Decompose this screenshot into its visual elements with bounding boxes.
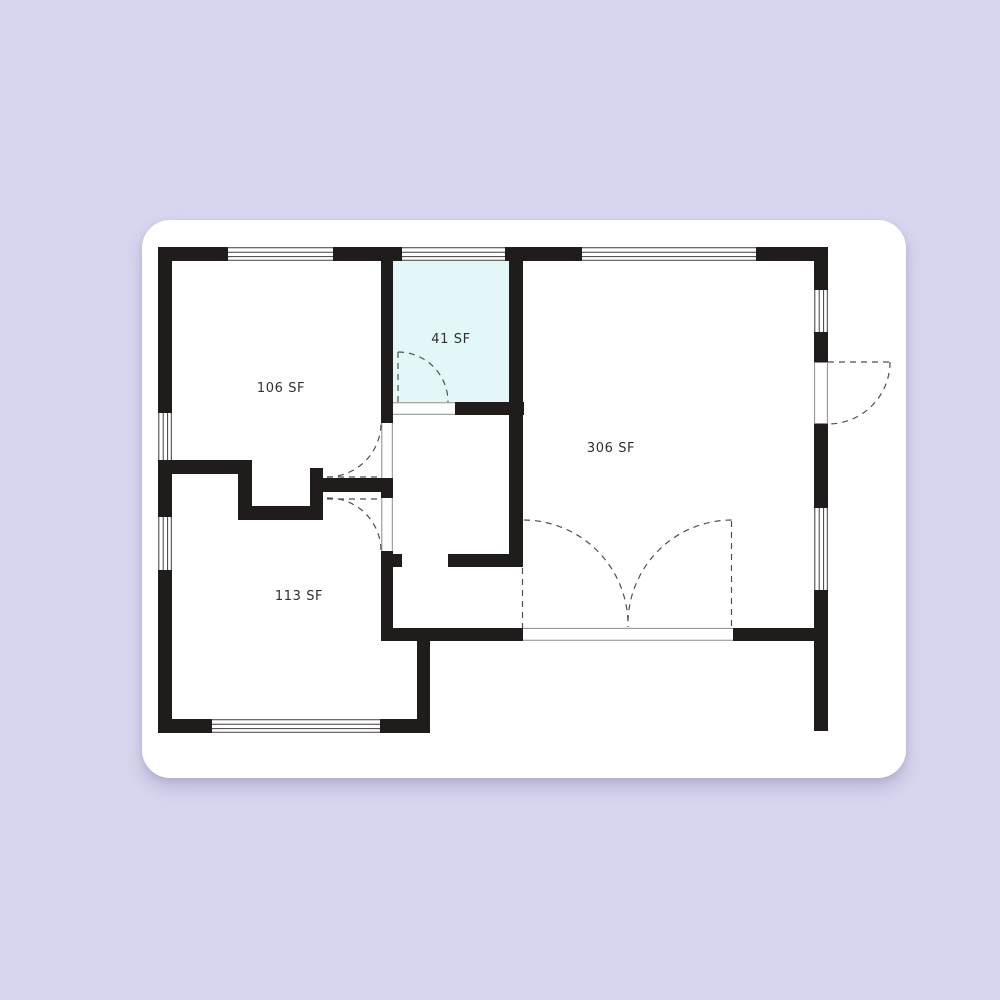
door-opening	[523, 628, 733, 641]
window-top-3	[582, 247, 756, 261]
room-label-41: 41 SF	[431, 332, 470, 347]
room-label-306: 306 SF	[587, 441, 635, 456]
wall-room306-west	[509, 247, 523, 567]
window-glass	[158, 413, 172, 460]
window-top-2	[402, 247, 505, 261]
wall-vestibule-south	[448, 554, 523, 567]
window-left-1	[158, 413, 172, 460]
window-glass	[582, 247, 756, 261]
door-swing-arc-right	[628, 520, 732, 627]
wall-room-divider-d	[310, 468, 323, 520]
window-glass	[814, 290, 828, 332]
window-glass	[158, 517, 172, 570]
double-door-room306-south	[523, 520, 734, 641]
door-swing-arc-left	[524, 520, 628, 627]
window-glass	[402, 247, 505, 261]
window-bottom-1	[212, 719, 380, 733]
window-left-2	[158, 517, 172, 570]
window-right-2	[814, 508, 828, 590]
door-opening	[381, 498, 393, 551]
window-right-1	[814, 290, 828, 332]
wall-exterior-left	[158, 247, 172, 733]
door-opening	[393, 402, 455, 415]
door-swing-arc	[327, 423, 381, 477]
wall-hall-tee	[322, 478, 381, 492]
window-top-1	[228, 247, 333, 261]
floor-plan: 106 SF 41 SF 306 SF 113 SF	[0, 0, 1000, 1000]
window-glass	[212, 719, 380, 733]
door-hall-lower	[327, 498, 393, 551]
door-swing-arc	[828, 362, 890, 424]
room-label-113: 113 SF	[275, 589, 323, 604]
door-swing-arc	[327, 498, 381, 551]
door-room306-east	[814, 362, 890, 424]
window-glass	[814, 508, 828, 590]
wall-central-stub	[393, 554, 402, 567]
room-label-106: 106 SF	[257, 381, 305, 396]
window-glass	[228, 247, 333, 261]
door-hall-upper	[327, 423, 393, 478]
wall-room-divider-b	[238, 460, 252, 520]
door-opening	[814, 362, 828, 424]
wall-room113-east	[417, 628, 430, 733]
door-opening	[381, 423, 393, 478]
